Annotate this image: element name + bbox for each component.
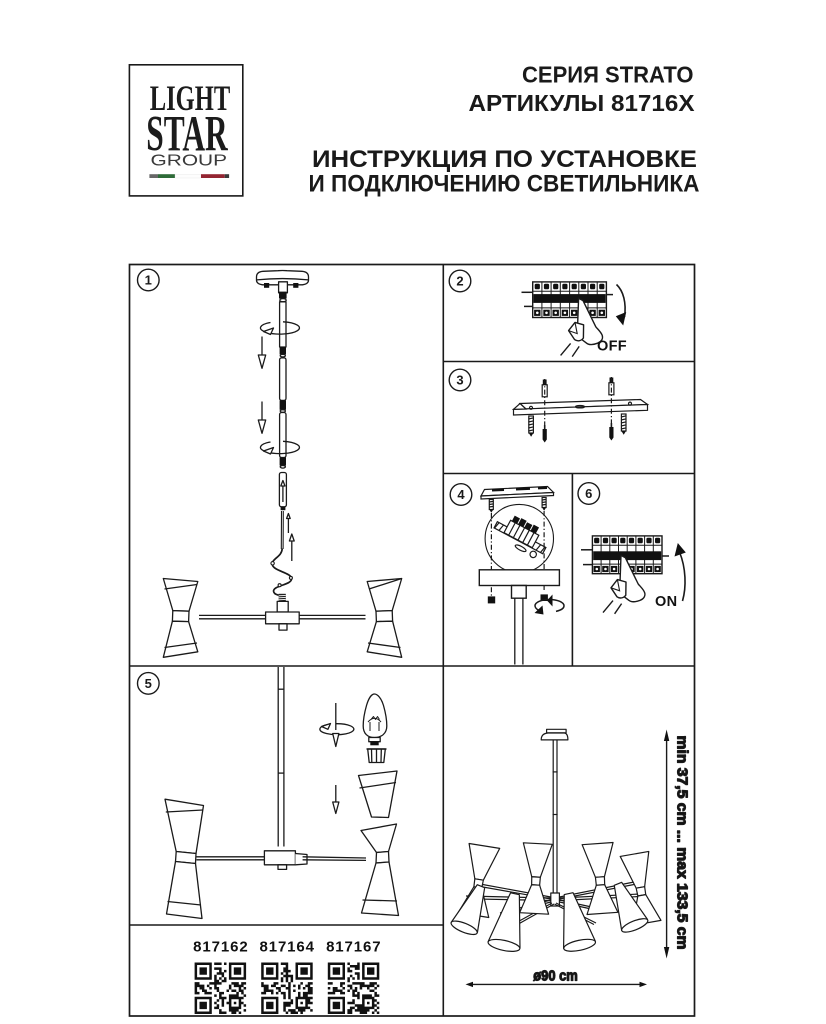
svg-text:ИНСТРУКЦИЯ ПО УСТАНОВКЕ: ИНСТРУКЦИЯ ПО УСТАНОВКЕ	[312, 146, 697, 173]
svg-text:GROUP: GROUP	[151, 152, 228, 169]
svg-text:4: 4	[457, 487, 465, 502]
svg-text:min 37,5 cm ... max 133,5 cm: min 37,5 cm ... max 133,5 cm	[674, 736, 690, 950]
svg-text:ø90 cm: ø90 cm	[533, 968, 578, 985]
svg-text:OFF: OFF	[597, 339, 627, 355]
svg-text:АРТИКУЛЫ 81716X: АРТИКУЛЫ 81716X	[469, 90, 696, 116]
svg-text:817167: 817167	[326, 939, 381, 956]
svg-text:2: 2	[456, 274, 463, 289]
svg-text:ON: ON	[655, 594, 677, 610]
svg-text:5: 5	[145, 676, 152, 691]
svg-text:817162: 817162	[193, 939, 248, 956]
svg-text:И ПОДКЛЮЧЕНИЮ СВЕТИЛЬНИКА: И ПОДКЛЮЧЕНИЮ СВЕТИЛЬНИКА	[309, 171, 700, 198]
svg-text:СЕРИЯ STRATO: СЕРИЯ STRATO	[522, 62, 694, 88]
svg-text:3: 3	[456, 373, 463, 388]
svg-text:817164: 817164	[259, 939, 314, 956]
svg-text:6: 6	[585, 486, 592, 501]
svg-text:1: 1	[145, 273, 152, 288]
